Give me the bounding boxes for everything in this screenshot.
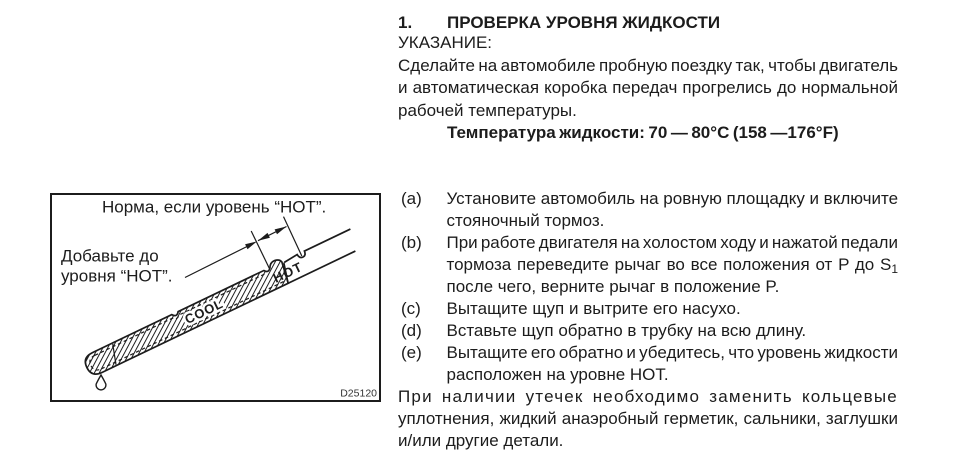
svg-text:Норма, если уровень “HOT”.: Норма, если уровень “HOT”. [102, 197, 326, 216]
svg-text:уровня “HOT”.: уровня “HOT”. [61, 267, 173, 286]
svg-text:D25120: D25120 [340, 388, 377, 400]
svg-text:Добавьте до: Добавьте до [61, 247, 159, 266]
